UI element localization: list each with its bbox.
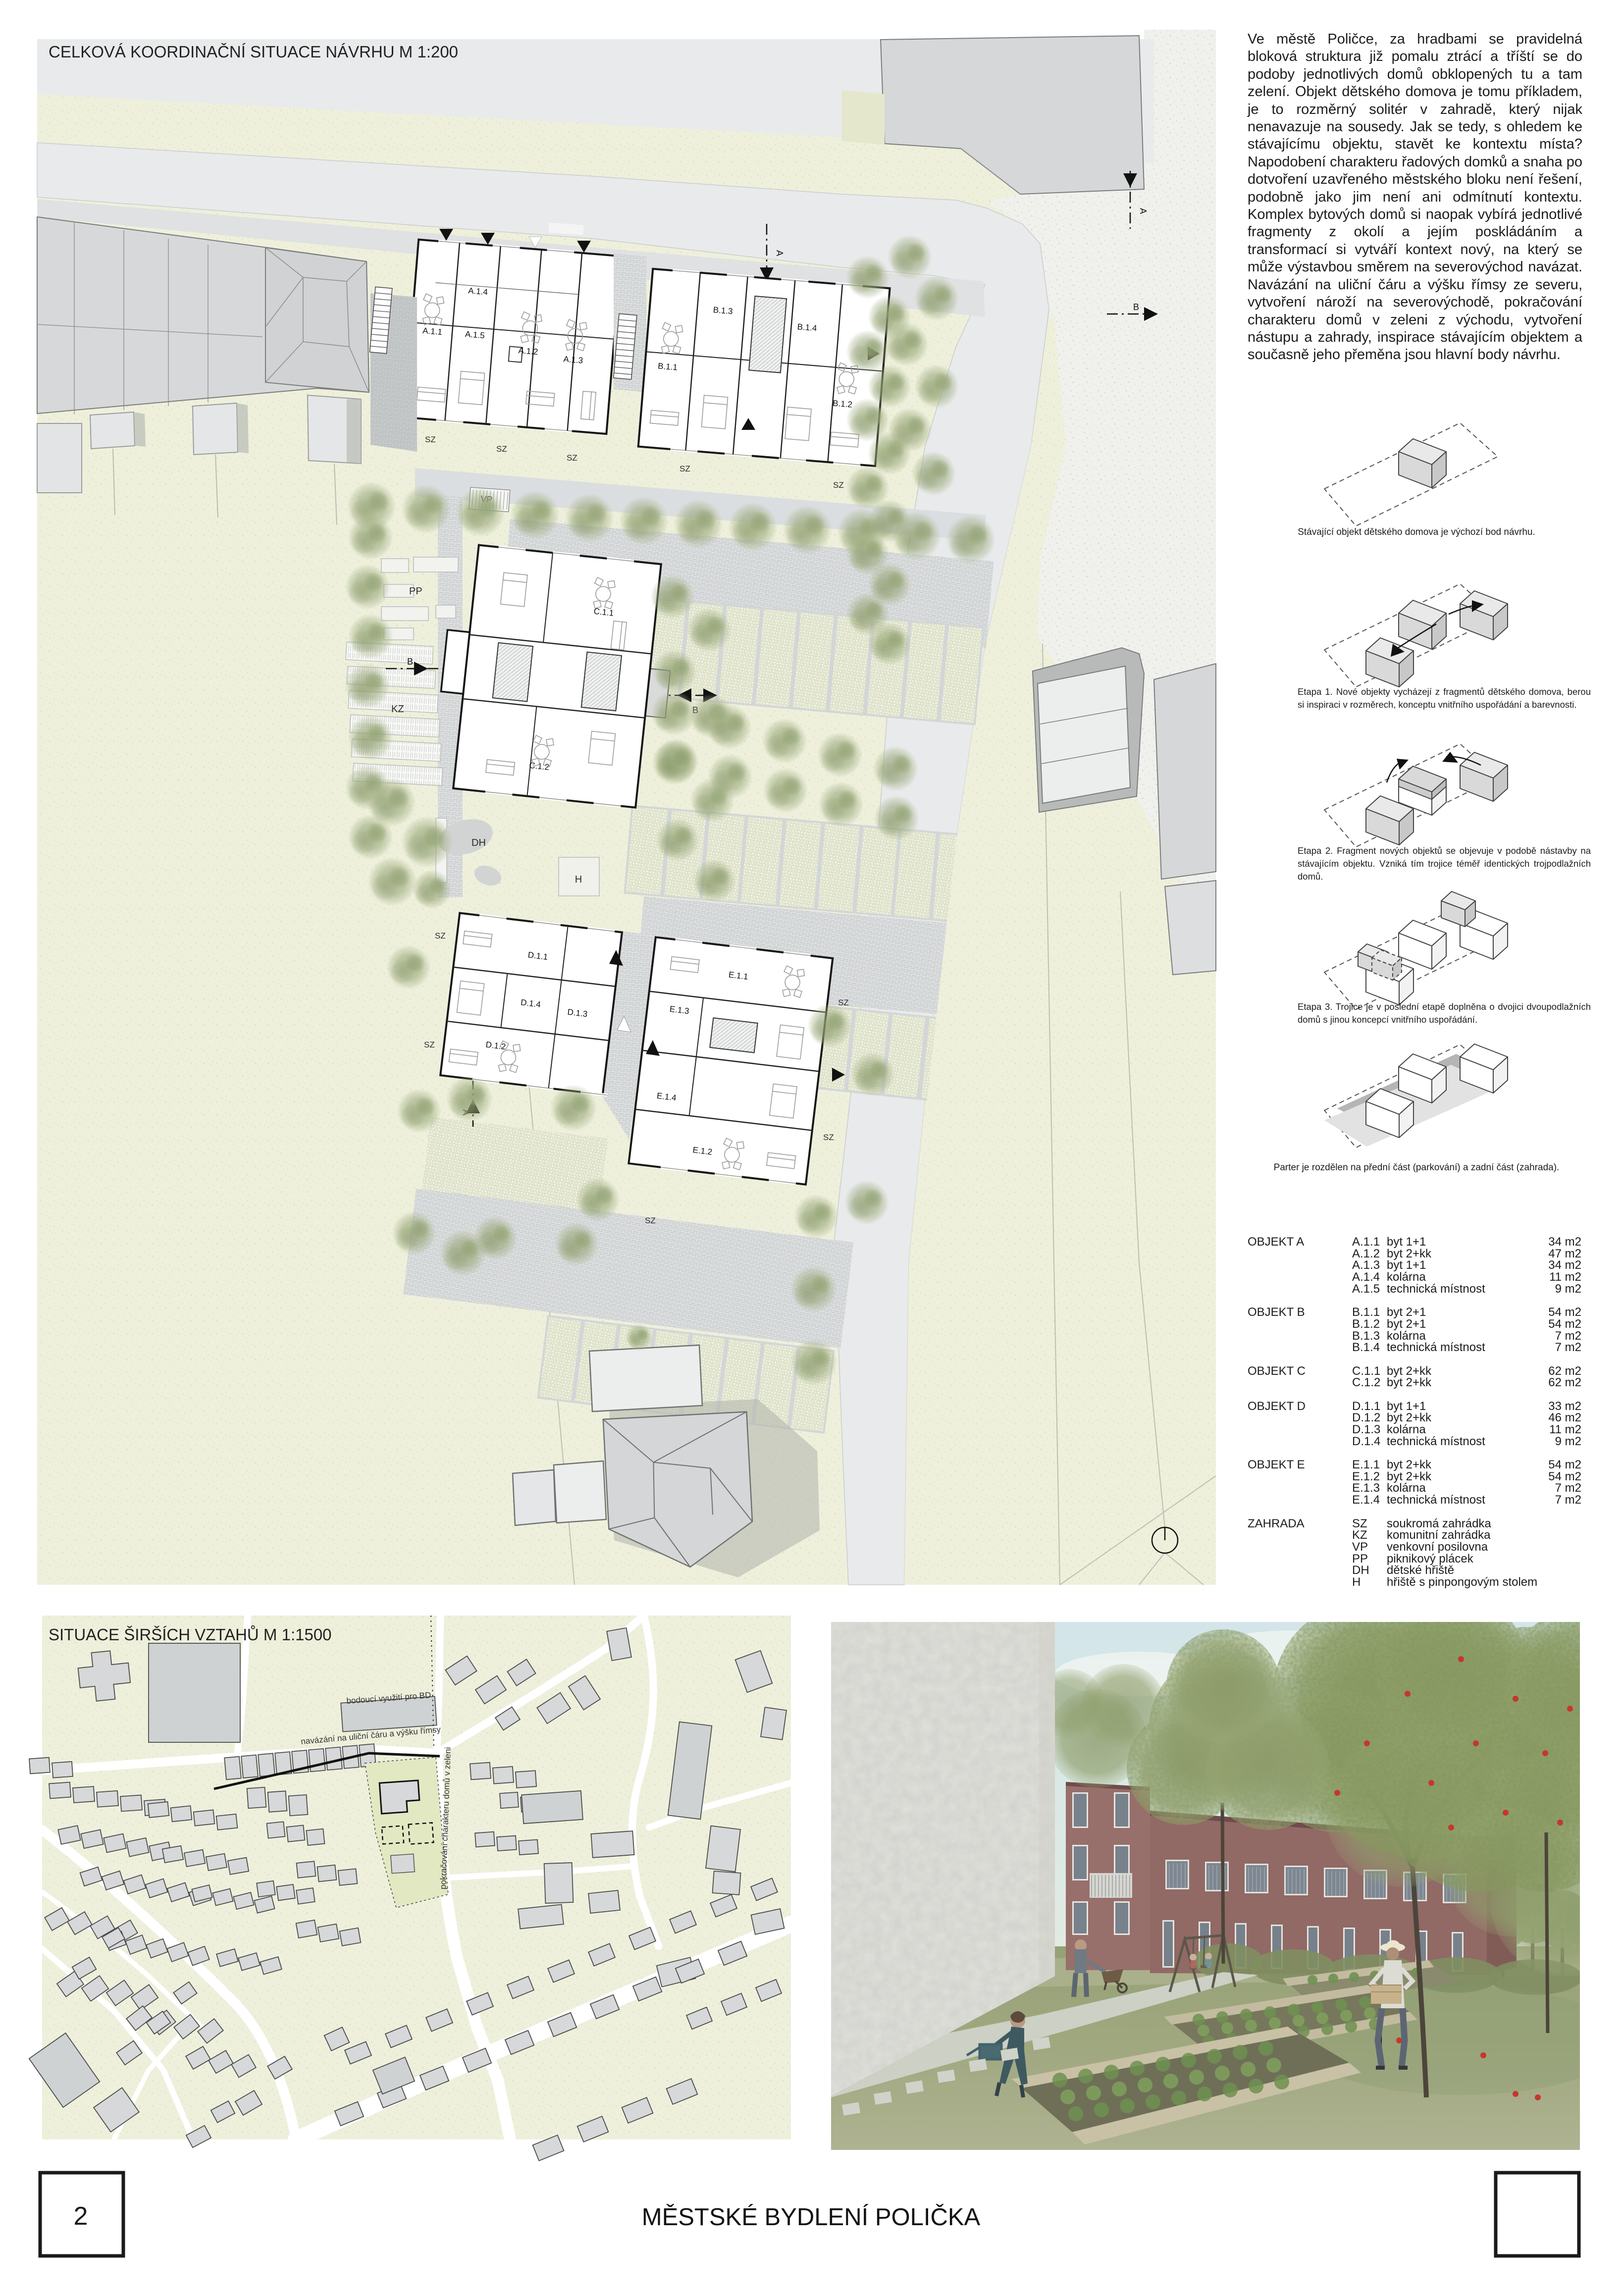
svg-text:SZ: SZ (567, 453, 577, 463)
svg-text:SZ: SZ (425, 435, 436, 444)
svg-text:SZ: SZ (680, 464, 690, 473)
svg-text:CELKOVÁ KOORDINAČNÍ SITUACE NÁ: CELKOVÁ KOORDINAČNÍ SITUACE NÁVRHU M 1:2… (49, 43, 458, 61)
svg-text:A.1.2: A.1.2 (518, 346, 538, 357)
svg-text:SITUACE ŠIRŠÍCH VZTAHŮ M 1:150: SITUACE ŠIRŠÍCH VZTAHŮ M 1:1500 (49, 1625, 332, 1644)
svg-text:SZ: SZ (496, 444, 507, 454)
svg-text:SZ: SZ (435, 931, 446, 940)
svg-text:H: H (575, 874, 582, 885)
svg-text:A.1.5: A.1.5 (465, 329, 485, 340)
svg-text:KZ: KZ (391, 704, 404, 715)
svg-text:B.1.4: B.1.4 (797, 322, 817, 333)
svg-text:A.1.1: A.1.1 (422, 326, 443, 337)
svg-text:SZ: SZ (645, 1216, 656, 1225)
svg-text:A.1.4: A.1.4 (468, 286, 488, 297)
svg-text:SZ: SZ (833, 480, 844, 490)
svg-text:B.1.3: B.1.3 (713, 305, 733, 316)
svg-text:B: B (1133, 302, 1139, 312)
svg-text:SZ: SZ (823, 1133, 834, 1142)
svg-text:A.1.3: A.1.3 (563, 354, 583, 365)
svg-text:B: B (407, 657, 413, 667)
svg-text:A: A (1138, 208, 1148, 214)
svg-text:DH: DH (471, 837, 486, 848)
svg-text:B.1.1: B.1.1 (658, 361, 678, 372)
svg-text:A: A (775, 250, 785, 256)
svg-text:SZ: SZ (424, 1040, 435, 1049)
svg-text:PP: PP (409, 586, 422, 597)
